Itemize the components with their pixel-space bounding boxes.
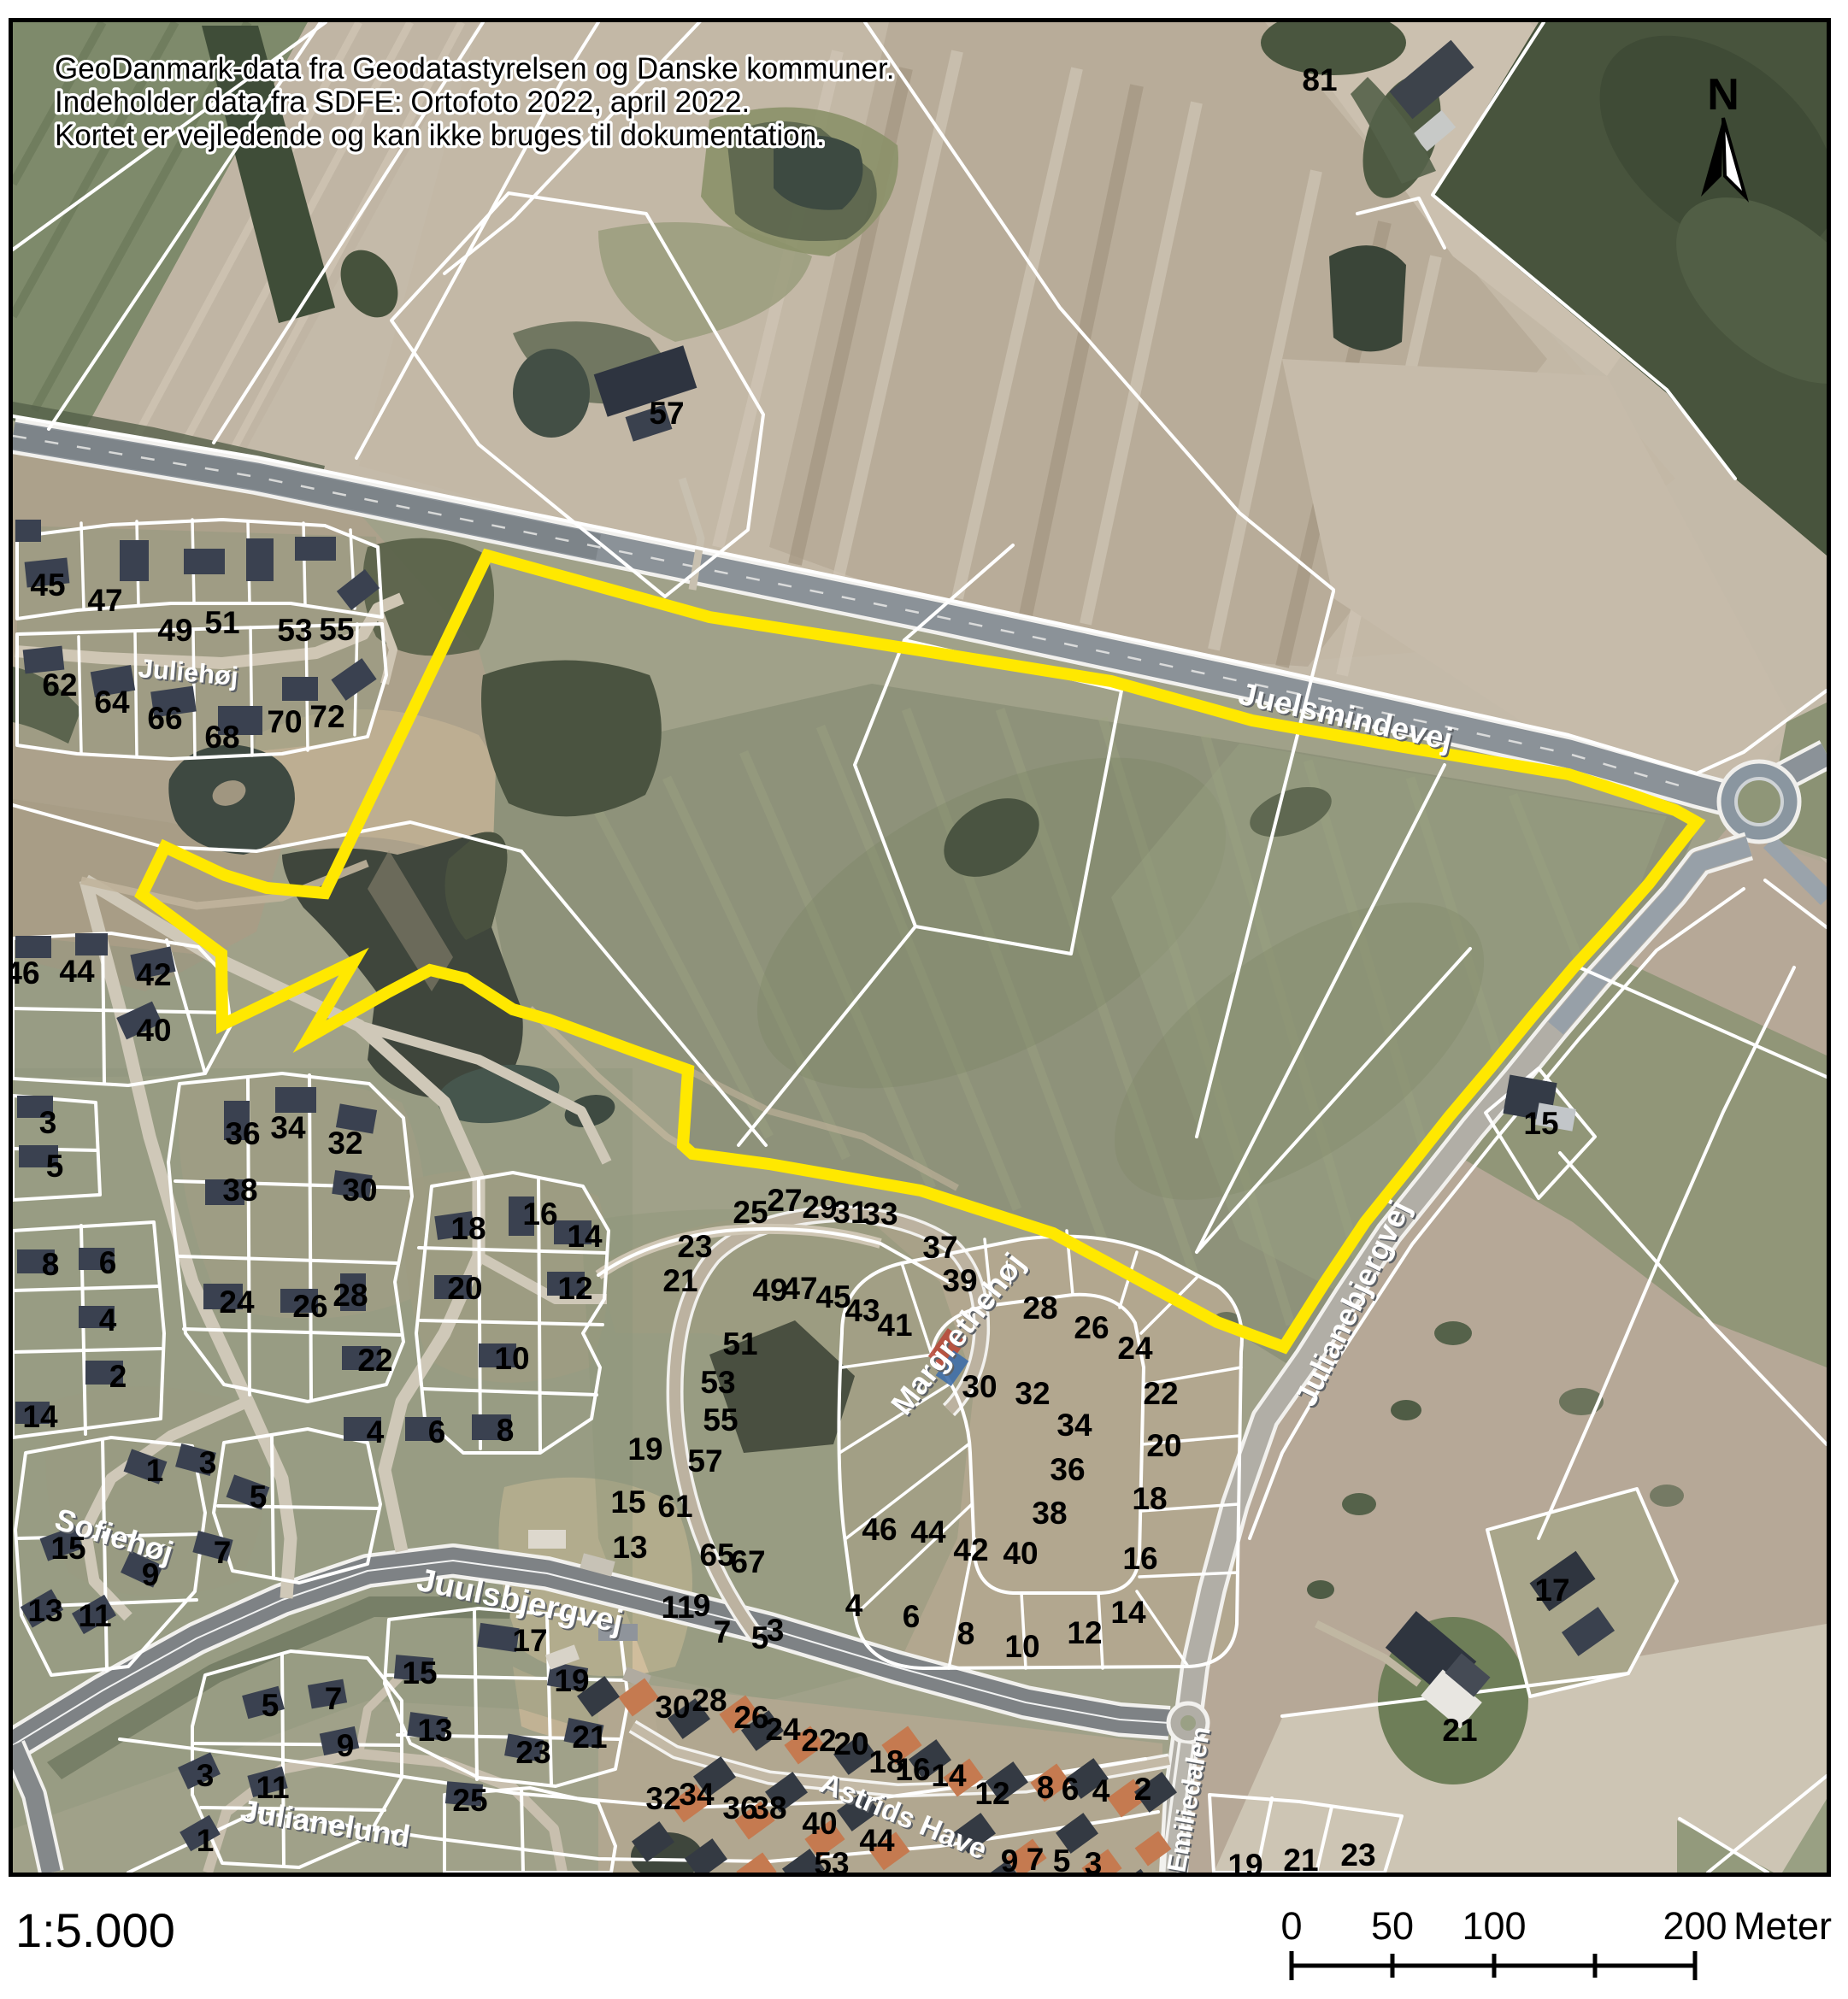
svg-text:67: 67 [730,1544,765,1579]
svg-text:44: 44 [859,1823,895,1858]
svg-text:55: 55 [319,612,354,647]
svg-text:Kortet er vejledende og kan ik: Kortet er vejledende og kan ikke bruges … [55,119,825,152]
svg-text:57: 57 [649,396,684,431]
svg-text:20: 20 [1146,1428,1181,1463]
svg-text:50: 50 [1371,1904,1414,1948]
svg-text:8: 8 [957,1616,975,1651]
svg-text:40: 40 [136,1013,171,1048]
svg-text:70: 70 [267,704,302,739]
svg-text:9: 9 [142,1557,160,1592]
svg-text:39: 39 [942,1263,977,1298]
svg-text:38: 38 [751,1790,786,1826]
svg-text:45: 45 [30,567,65,603]
svg-text:32: 32 [327,1126,362,1161]
svg-text:36: 36 [225,1116,260,1151]
svg-text:3: 3 [767,1613,785,1648]
svg-text:21: 21 [1442,1713,1477,1748]
svg-text:7: 7 [1027,1842,1045,1877]
svg-text:4: 4 [99,1302,117,1338]
svg-text:13: 13 [27,1593,62,1628]
svg-text:17: 17 [512,1623,547,1658]
svg-text:15: 15 [402,1655,437,1690]
svg-text:30: 30 [342,1173,377,1208]
svg-text:14: 14 [567,1219,603,1254]
svg-text:15: 15 [610,1485,645,1520]
svg-text:18: 18 [1132,1481,1167,1516]
svg-text:11: 11 [661,1590,694,1625]
svg-text:64: 64 [94,685,130,720]
svg-text:21: 21 [662,1263,697,1298]
svg-text:9: 9 [693,1588,711,1623]
svg-text:24: 24 [219,1285,255,1320]
svg-text:14: 14 [1110,1595,1146,1630]
svg-text:6: 6 [99,1245,117,1280]
svg-text:6: 6 [428,1414,446,1449]
svg-text:18: 18 [450,1211,486,1246]
svg-text:12: 12 [1067,1615,1102,1650]
svg-text:2: 2 [1134,1772,1152,1807]
svg-text:N: N [1707,70,1739,120]
svg-text:53: 53 [700,1365,735,1400]
svg-text:22: 22 [357,1343,392,1378]
svg-text:62: 62 [42,667,77,703]
svg-text:81: 81 [1302,62,1337,97]
svg-text:8: 8 [1037,1770,1055,1805]
svg-text:16: 16 [1122,1541,1157,1576]
svg-text:3: 3 [197,1758,215,1793]
svg-text:53: 53 [277,613,312,648]
svg-text:3: 3 [199,1445,217,1480]
svg-text:38: 38 [222,1173,257,1208]
svg-text:7: 7 [214,1535,232,1570]
svg-text:23: 23 [1340,1837,1375,1873]
svg-text:65: 65 [699,1537,734,1573]
svg-text:40: 40 [802,1806,837,1841]
svg-text:19: 19 [554,1663,589,1698]
svg-text:32: 32 [645,1781,680,1816]
svg-text:40: 40 [1003,1536,1038,1571]
svg-text:14: 14 [931,1758,967,1793]
svg-text:2: 2 [109,1359,127,1394]
svg-text:13: 13 [612,1530,647,1565]
svg-text:49: 49 [157,613,192,648]
svg-text:19: 19 [627,1432,662,1467]
svg-text:37: 37 [922,1230,957,1265]
svg-text:15: 15 [50,1531,85,1566]
svg-text:21: 21 [572,1720,607,1755]
svg-text:10: 10 [1004,1629,1039,1664]
svg-text:GeoDanmark-data fra Geodatasty: GeoDanmark-data fra Geodatastyrelsen og … [55,52,894,85]
svg-text:1:5.000: 1:5.000 [15,1903,175,1957]
svg-text:68: 68 [204,720,239,755]
svg-text:27: 27 [767,1183,802,1218]
svg-text:16: 16 [522,1196,557,1232]
svg-text:20: 20 [447,1271,482,1306]
svg-text:51: 51 [722,1326,757,1361]
svg-text:20: 20 [833,1726,868,1761]
svg-text:30: 30 [962,1369,997,1404]
svg-text:0: 0 [1280,1904,1302,1948]
svg-text:33: 33 [862,1196,898,1232]
svg-text:8: 8 [497,1413,515,1448]
svg-text:23: 23 [677,1229,712,1264]
svg-text:8: 8 [42,1247,60,1282]
svg-text:16: 16 [895,1752,930,1787]
svg-text:26: 26 [292,1289,327,1324]
svg-text:32: 32 [1015,1376,1050,1411]
svg-text:51: 51 [204,605,239,640]
svg-text:5: 5 [46,1149,64,1184]
svg-text:25: 25 [452,1783,487,1818]
svg-text:46: 46 [862,1512,897,1547]
svg-text:100: 100 [1462,1904,1526,1948]
svg-text:28: 28 [1022,1291,1057,1326]
svg-text:14: 14 [22,1399,58,1434]
svg-text:15: 15 [1523,1106,1558,1141]
svg-text:41: 41 [877,1308,912,1343]
svg-text:200: 200 [1663,1904,1727,1948]
svg-text:12: 12 [557,1271,592,1306]
svg-text:28: 28 [692,1683,727,1718]
svg-text:10: 10 [494,1341,529,1376]
svg-text:9: 9 [337,1728,355,1763]
svg-text:44: 44 [910,1514,946,1549]
svg-text:13: 13 [417,1713,452,1748]
svg-text:61: 61 [657,1489,692,1524]
svg-text:57: 57 [687,1443,722,1479]
svg-text:5: 5 [262,1688,280,1723]
svg-text:17: 17 [1534,1573,1569,1608]
svg-text:22: 22 [1143,1376,1178,1411]
svg-text:7: 7 [325,1681,343,1716]
svg-text:Indeholder data fra SDFE: Orto: Indeholder data fra SDFE: Ortofoto 2022,… [55,85,750,119]
svg-text:26: 26 [733,1700,768,1735]
svg-text:43: 43 [845,1293,880,1328]
svg-text:34: 34 [679,1777,715,1812]
svg-text:24: 24 [1117,1331,1153,1366]
svg-text:Meter: Meter [1733,1904,1832,1948]
svg-text:28: 28 [333,1278,368,1313]
svg-text:29: 29 [802,1190,837,1225]
svg-text:34: 34 [1056,1408,1092,1443]
svg-text:7: 7 [714,1614,732,1649]
svg-text:55: 55 [703,1402,738,1438]
svg-text:22: 22 [801,1723,836,1758]
svg-text:47: 47 [87,583,122,618]
svg-text:6: 6 [903,1599,921,1634]
svg-text:25: 25 [733,1195,768,1230]
svg-text:6: 6 [1062,1772,1080,1807]
svg-text:3: 3 [39,1105,57,1140]
svg-text:21: 21 [1283,1843,1318,1878]
svg-text:24: 24 [765,1712,801,1747]
svg-text:4: 4 [1092,1773,1110,1808]
svg-text:47: 47 [782,1271,817,1306]
svg-text:4: 4 [367,1414,385,1449]
svg-text:1: 1 [146,1453,164,1488]
svg-text:1: 1 [197,1823,215,1858]
svg-text:34: 34 [270,1110,306,1145]
svg-text:42: 42 [953,1532,988,1567]
svg-text:30: 30 [655,1690,690,1725]
svg-text:23: 23 [515,1735,550,1770]
svg-text:5: 5 [250,1479,268,1514]
svg-text:66: 66 [147,701,182,736]
svg-text:12: 12 [974,1776,1009,1811]
svg-text:11: 11 [78,1598,111,1633]
svg-text:38: 38 [1032,1496,1067,1531]
svg-text:26: 26 [1074,1310,1109,1345]
svg-text:36: 36 [1050,1452,1085,1487]
svg-text:44: 44 [59,954,95,989]
svg-text:42: 42 [136,957,171,992]
svg-text:72: 72 [309,699,344,734]
svg-text:4: 4 [845,1588,863,1623]
svg-text:11: 11 [256,1770,289,1805]
